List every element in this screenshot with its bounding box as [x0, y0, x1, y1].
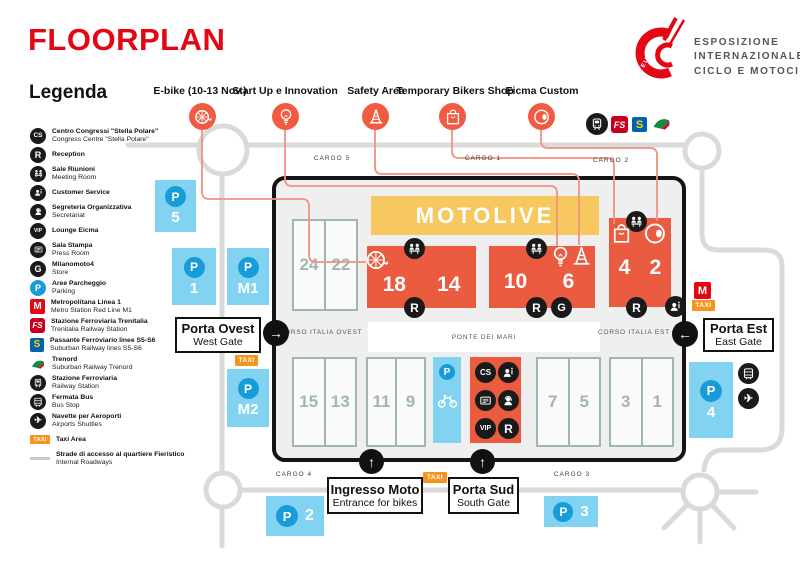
customer-service-icon — [30, 185, 46, 201]
hall-24: 24 — [294, 221, 324, 309]
startup-bulb-icon — [272, 103, 299, 130]
gate-east: Porta Est East Gate — [703, 318, 774, 352]
feature-label-bikers-shop: Temporary Bikers Shop — [396, 85, 514, 97]
bus-stop-icon — [30, 394, 46, 410]
reception-icon: R — [30, 147, 46, 163]
trenord-icon — [30, 356, 46, 372]
feature-label-startup: Start Up e Innovation — [232, 85, 338, 97]
hall-7: 7 — [538, 359, 568, 445]
legend-item-trenord: TrenordSuburban Railway Trenord — [30, 354, 255, 373]
press-room-icon — [30, 242, 46, 258]
roundabout-southwest — [206, 473, 240, 507]
taxi-badge-east: TAXI — [692, 300, 715, 311]
hall-5: 5 — [568, 359, 600, 445]
corso-italia-est-label: CORSO ITALIA EST — [598, 329, 670, 336]
hall-pair-15-13: 15 13 — [292, 357, 357, 447]
meeting-room-icon — [526, 238, 547, 259]
hall-pair-3-1: 3 1 — [609, 357, 674, 447]
logo-line-2: INTERNAZIONALE — [694, 50, 800, 64]
eicma-custom-helmet-icon — [528, 103, 555, 130]
east-gate-arrow-icon: ← — [672, 321, 698, 347]
hall-22: 22 — [324, 221, 356, 309]
secretariat-icon — [30, 204, 46, 220]
hall-11: 11 — [368, 359, 395, 445]
hall-3: 3 — [611, 359, 641, 445]
store-icon: G — [30, 261, 46, 277]
eicma-floorplan: FLOORPLAN Legenda EICMA ESPOSIZIONE INTE… — [0, 0, 800, 565]
reception-icon: R — [526, 297, 547, 318]
customer-service-icon — [665, 296, 686, 317]
south-gate-arrow-icon: ↑ — [470, 449, 495, 474]
legend-item-reception: R Reception — [30, 145, 255, 164]
west-gate-arrow-icon: → — [263, 320, 289, 346]
railway-station-icon — [586, 113, 608, 135]
page-title: FLOORPLAN — [28, 22, 225, 58]
hall-pair-24-22: 24 22 — [292, 219, 358, 311]
legend-item-meeting: Sale RiunioniMeeting Room — [30, 164, 255, 183]
parking-number: 5 — [171, 209, 179, 226]
parking-icon: P — [30, 280, 46, 296]
legend-item-vip-lounge: VIP Lounge Eicma — [30, 221, 255, 240]
ebike-wheel-icon — [364, 247, 390, 273]
reception-icon: R — [498, 418, 519, 439]
roundabout-northeast — [685, 134, 719, 168]
logo-wordmark: ESPOSIZIONE INTERNAZIONALE CICLO E MOTOC… — [694, 36, 800, 79]
moto-entrance-arrow-icon: ↑ — [359, 449, 384, 474]
metro-icon: M — [30, 299, 45, 314]
trenord-icon — [651, 113, 672, 134]
eicma-logo-icon: EICMA — [628, 8, 690, 86]
secretariat-icon — [498, 390, 519, 411]
ebike-wheel-icon — [189, 103, 216, 130]
eicma-custom-helmet-icon — [642, 220, 669, 247]
reception-icon: R — [404, 297, 425, 318]
hall-9: 9 — [395, 359, 424, 445]
hall-14: 14 — [422, 262, 477, 308]
congress-centre-icon: CS — [475, 362, 496, 383]
gate-west: Porta Ovest West Gate — [175, 317, 261, 353]
legend-item-customer-service: Customer Service — [30, 183, 255, 202]
suburban-railway-icon: S — [632, 117, 647, 132]
legend-item-taxi: TAXI Taxi Area — [30, 430, 255, 449]
bikers-shop-bag-icon — [609, 221, 634, 246]
parking-icon: P — [238, 257, 259, 278]
legend-item-secretariat: Segreteria OrganizzativaSecretariat — [30, 202, 255, 221]
cargo-2-label: CARGO 2 — [593, 157, 629, 164]
legend-item-metro: M Metropolitana Linea 1Metro Station Red… — [30, 297, 255, 316]
ponte-dei-mari-label: PONTE DEI MARI — [452, 334, 516, 341]
legend-item-parking: P Aree ParcheggioParking — [30, 278, 255, 297]
internal-roadway-icon — [30, 457, 50, 460]
hall-pair-7-5: 7 5 — [536, 357, 601, 447]
exhibition-building: MOTOLIVE 24 22 15 13 11 9 7 5 3 1 18 14 … — [272, 176, 686, 462]
congress-centre-icon: CS — [30, 128, 46, 144]
suburban-railway-icon: S — [30, 338, 44, 352]
parking-number: 1 — [190, 280, 198, 297]
vip-lounge-icon: VIP — [475, 418, 496, 439]
logo-line-1: ESPOSIZIONE — [694, 36, 800, 50]
legend-item-internal-roadway: Strade di accesso al quartiere Fieristic… — [30, 449, 255, 468]
parking-number: M1 — [238, 280, 259, 297]
cargo-4-label: CARGO 4 — [276, 471, 312, 478]
parking-icon: P — [165, 186, 186, 207]
roundabout-southeast — [683, 475, 717, 509]
parking-pm1: P M1 — [227, 248, 269, 305]
reception-icon: R — [626, 297, 647, 318]
road-junction-southeast — [664, 492, 756, 542]
bike-parking-strip: P — [433, 357, 461, 443]
safety-cone-icon — [362, 103, 389, 130]
parking-p2: P 2 — [266, 496, 324, 536]
safety-cone-icon — [569, 244, 594, 269]
meeting-room-icon — [30, 166, 46, 182]
hall-15: 15 — [294, 359, 324, 445]
trenitalia-icon: FS — [611, 116, 628, 133]
parking-pm2: P M2 — [227, 369, 269, 427]
cargo-1-label: CARGO 1 — [465, 155, 501, 162]
ponte-dei-mari: PONTE DEI MARI — [368, 322, 600, 352]
parking-icon: P — [553, 502, 573, 522]
parking-icon: P — [238, 378, 259, 399]
legend-item-congress: CS Centro Congressi "Stella Polare"Congr… — [30, 126, 255, 145]
trenitalia-icon: FS — [30, 318, 45, 333]
store-icon: G — [551, 297, 572, 318]
taxi-badge-south: TAXI — [423, 472, 447, 483]
taxi-badge-west: TAXI — [235, 355, 258, 366]
legend-item-railway-station: Stazione FerroviariaRailway Station — [30, 373, 255, 392]
hall-13: 13 — [324, 359, 356, 445]
parking-icon: P — [439, 364, 455, 380]
legend-item-store: G Milanomoto4Store — [30, 259, 255, 278]
airport-shuttle-icon: ✈ — [738, 388, 759, 409]
legend-item-press-room: Sala StampaPress Room — [30, 240, 255, 259]
parking-number: M2 — [238, 401, 259, 418]
logo-line-3: CICLO E MOTOCICLO — [694, 65, 800, 79]
parking-p4: P 4 — [689, 362, 733, 438]
corso-italia-ovest-label: CORSO ITALIA OVEST — [280, 329, 363, 336]
press-room-icon — [475, 390, 496, 411]
bus-stop-icon — [738, 363, 759, 384]
parking-number: 2 — [305, 507, 314, 525]
parking-icon: P — [700, 380, 722, 402]
legend-item-airport-shuttle: ✈ Navette per AeroportiAirports Shuttles — [30, 411, 255, 430]
parking-p1: P 1 — [172, 248, 216, 305]
parking-p3: P 3 — [544, 496, 598, 527]
gate-south: Porta Sud South Gate — [448, 477, 519, 514]
vip-lounge-icon: VIP — [30, 223, 46, 239]
meeting-room-icon — [404, 238, 425, 259]
cargo-5-label: CARGO 5 — [314, 155, 350, 162]
legend-heading: Legenda — [29, 82, 107, 104]
legend: CS Centro Congressi "Stella Polare"Congr… — [30, 126, 255, 468]
hall-1: 1 — [641, 359, 673, 445]
bikers-shop-bag-icon — [439, 103, 466, 130]
hall-pair-11-9: 11 9 — [366, 357, 426, 447]
gate-moto: Ingresso Moto Entrance for bikes — [327, 477, 423, 514]
customer-service-icon — [498, 362, 519, 383]
cargo-3-label: CARGO 3 — [554, 471, 590, 478]
feature-label-eicma-custom: Eicma Custom — [506, 85, 579, 97]
parking-p5: P 5 — [155, 180, 196, 232]
parking-icon: P — [276, 505, 298, 527]
parking-number: 3 — [580, 503, 588, 520]
metro-icon: M — [694, 282, 711, 299]
parking-number: 4 — [707, 404, 715, 421]
airport-shuttle-icon: ✈ — [30, 413, 46, 429]
legend-item-bus-stop: Fermata BusBus Stop — [30, 392, 255, 411]
services-block: CS VIP R — [470, 357, 521, 443]
motolive-area: MOTOLIVE — [371, 196, 599, 235]
taxi-area-icon: TAXI — [30, 435, 50, 444]
parking-icon: P — [184, 257, 205, 278]
railway-station-icon — [30, 375, 46, 391]
